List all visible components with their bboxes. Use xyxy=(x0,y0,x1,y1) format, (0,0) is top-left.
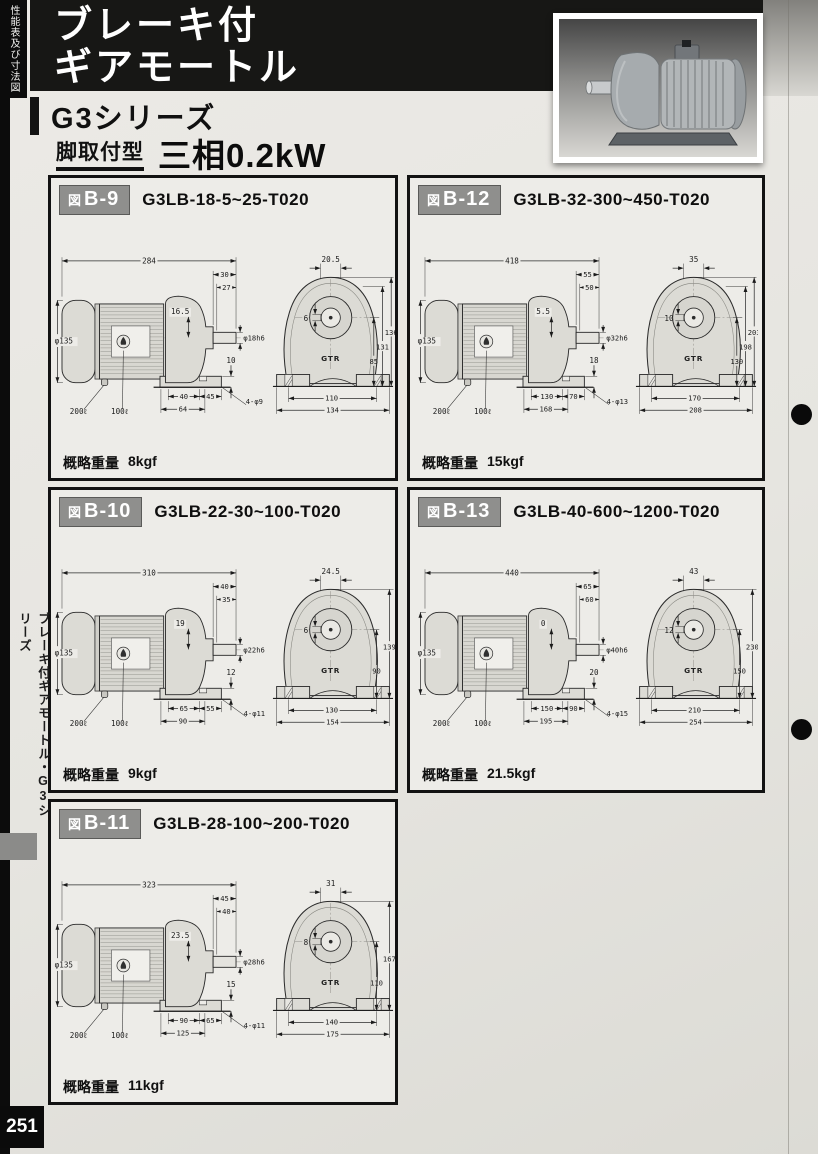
binder-hole-top xyxy=(791,404,812,425)
dimension-label: 16.5 xyxy=(171,307,189,316)
dimension-drawing: 44065600φ135φ40h620200ℓ100ℓ150901954-φ15… xyxy=(412,536,760,764)
end-view: GTR20.5613613185110134 xyxy=(271,248,395,429)
weight-label: 概略重量 xyxy=(63,453,119,473)
dimension-label: 45 xyxy=(220,894,229,903)
side-view: 41855505.5φ135φ32h618200ℓ100ℓ130701684-φ… xyxy=(414,248,632,429)
dimension-label: φ40h6 xyxy=(606,645,627,654)
dimension-label: 150 xyxy=(733,666,746,675)
dimension-label: 10 xyxy=(664,313,674,322)
series-title: G3シリーズ xyxy=(51,95,216,137)
dimension-label: 5.5 xyxy=(536,307,550,316)
dimension-label: 154 xyxy=(326,717,339,726)
catalog-page: 性能表及び寸法図 ブレーキ付 ギアモートル xyxy=(0,0,818,1154)
figure-panel-b9: 図 B-9 G3LB-18-5~25-T020 284302716.5φ135φ… xyxy=(48,175,398,481)
dimension-label: 65 xyxy=(583,582,592,591)
dimension-label: φ135 xyxy=(418,648,436,657)
dimension-label: 150 xyxy=(540,703,553,712)
dimension-label: 323 xyxy=(142,880,156,889)
weight-value: 15kgf xyxy=(487,453,524,473)
figure-panel-b10: 図 B-10 G3LB-22-30~100-T020 310403519φ135… xyxy=(48,487,398,793)
dimension-label: 203 xyxy=(748,327,758,336)
dimension-label: 134 xyxy=(326,405,339,414)
figure-badge-code: B-13 xyxy=(443,500,490,523)
dimension-label: 136 xyxy=(385,327,395,336)
gtr-logo: GTR xyxy=(321,353,340,362)
side-view-drawing: 310403519φ135φ22h612200ℓ100ℓ6555904-φ11 xyxy=(51,560,269,736)
panel-header: 図 B-11 G3LB-28-100~200-T020 xyxy=(51,802,395,839)
dimension-label: 195 xyxy=(539,716,552,725)
dimension-label: 100ℓ xyxy=(111,1030,129,1039)
corner-shade xyxy=(763,0,818,96)
dimension-label: 70 xyxy=(569,391,578,400)
dimension-drawing: 310403519φ135φ22h612200ℓ100ℓ6555904-φ11 … xyxy=(53,536,393,764)
dimension-label: 100ℓ xyxy=(111,406,129,415)
dimension-label: 168 xyxy=(539,404,552,413)
dimension-label: 12 xyxy=(664,625,673,634)
dimension-label: 100ℓ xyxy=(474,718,492,727)
end-view: GTR318167110140175 xyxy=(271,872,395,1053)
dimension-label: φ28h6 xyxy=(243,957,264,966)
dimension-label: 19 xyxy=(176,619,186,628)
end-view: GTR4312230150210254 xyxy=(634,560,758,741)
dimension-label: 27 xyxy=(222,282,231,291)
dimension-label: 50 xyxy=(585,282,594,291)
dimension-label: 85 xyxy=(369,357,378,366)
end-view-drawing: GTR20.5613613185110134 xyxy=(271,248,395,424)
product-photo xyxy=(553,13,763,163)
series-heading-row: G3シリーズ xyxy=(30,95,216,137)
figure-panel-b12: 図 B-12 G3LB-32-300~450-T020 41855505.5φ1… xyxy=(407,175,765,481)
dimension-label: φ135 xyxy=(55,648,73,657)
end-view: GTR3510203198130170208 xyxy=(634,248,758,429)
dimension-label: 100ℓ xyxy=(111,718,129,727)
dimension-label: φ18h6 xyxy=(243,333,264,342)
dimension-label: φ32h6 xyxy=(606,333,627,342)
weight-row: 概略重量 11kgf xyxy=(63,1077,164,1097)
weight-value: 9kgf xyxy=(128,765,157,785)
dimension-label: 40 xyxy=(180,391,189,400)
dimension-label: 110 xyxy=(325,393,338,402)
weight-value: 11kgf xyxy=(128,1077,164,1097)
section-index-label: 性能表及び寸法図 xyxy=(6,5,21,98)
weight-row: 概略重量 15kgf xyxy=(422,453,524,473)
dimension-label: 10 xyxy=(226,356,236,365)
panel-header: 図 B-13 G3LB-40-600~1200-T020 xyxy=(410,490,762,527)
series-accent-bar xyxy=(30,97,39,135)
dimension-label: 210 xyxy=(688,705,701,714)
figure-badge-code: B-11 xyxy=(84,812,130,835)
gtr-logo: GTR xyxy=(684,353,703,362)
dimension-label: 175 xyxy=(326,1029,339,1038)
dimension-drawing: 284302716.5φ135φ18h610200ℓ100ℓ4045644-φ9… xyxy=(53,224,393,452)
dimension-label: 65 xyxy=(206,1015,215,1024)
dimension-label: 130 xyxy=(540,391,553,400)
sidebar-gray-tab xyxy=(0,833,37,860)
figure-panel-b13: 図 B-13 G3LB-40-600~1200-T020 44065600φ13… xyxy=(407,487,765,793)
dimension-drawing: 323454023.5φ135φ28h615200ℓ100ℓ90651254-φ… xyxy=(53,848,393,1076)
sidebar-vertical-title: ブレーキ付ギアモートル・G3シリーズ xyxy=(15,612,53,827)
binder-hole-bottom xyxy=(791,719,812,740)
dimension-label: 208 xyxy=(689,405,702,414)
end-view-drawing: GTR4312230150210254 xyxy=(634,560,758,736)
dimension-label: 90 xyxy=(180,1015,189,1024)
gtr-logo: GTR xyxy=(321,977,340,986)
side-view: 310403519φ135φ22h612200ℓ100ℓ6555904-φ11 xyxy=(51,560,269,741)
page-left-edge xyxy=(0,0,10,1154)
model-number: G3LB-22-30~100-T020 xyxy=(154,502,341,522)
dimension-label: 284 xyxy=(142,256,156,265)
figure-panel-b11: 図 B-11 G3LB-28-100~200-T020 323454023.5φ… xyxy=(48,799,398,1105)
dimension-label: 55 xyxy=(583,270,592,279)
dimension-label: 6 xyxy=(304,313,309,322)
dimension-label: 90 xyxy=(179,716,188,725)
weight-row: 概略重量 21.5kgf xyxy=(422,765,535,785)
dimension-drawing: 41855505.5φ135φ32h618200ℓ100ℓ130701684-φ… xyxy=(412,224,760,452)
weight-row: 概略重量 9kgf xyxy=(63,765,157,785)
weight-label: 概略重量 xyxy=(422,453,478,473)
dimension-label: 440 xyxy=(505,568,519,577)
dimension-label: 4-φ11 xyxy=(244,708,265,717)
dimension-label: 230 xyxy=(746,642,758,651)
end-view: GTR24.5613990130154 xyxy=(271,560,395,741)
figure-badge: 図 B-11 xyxy=(59,809,141,839)
page-edge-line xyxy=(788,0,789,1154)
dimension-label: 40 xyxy=(220,582,229,591)
gtr-logo: GTR xyxy=(321,665,340,674)
dimension-label: 65 xyxy=(180,703,189,712)
end-view-drawing: GTR24.5613990130154 xyxy=(271,560,395,736)
dimension-label: 18 xyxy=(589,356,599,365)
model-number: G3LB-28-100~200-T020 xyxy=(153,814,350,834)
weight-value: 8kgf xyxy=(128,453,157,473)
figure-badge-prefix: 図 xyxy=(68,814,81,833)
dimension-label: 170 xyxy=(688,393,701,402)
dimension-label: 90 xyxy=(569,703,578,712)
dimension-label: 64 xyxy=(179,404,188,413)
side-view: 284302716.5φ135φ18h610200ℓ100ℓ4045644-φ9 xyxy=(51,248,269,429)
side-view-drawing: 284302716.5φ135φ18h610200ℓ100ℓ4045644-φ9 xyxy=(51,248,269,424)
side-view: 323454023.5φ135φ28h615200ℓ100ℓ90651254-φ… xyxy=(51,872,269,1053)
dimension-label: 23.5 xyxy=(171,931,189,940)
dimension-label: 30 xyxy=(220,270,229,279)
figure-badge: 図 B-9 xyxy=(59,185,130,215)
side-view-drawing: 44065600φ135φ40h620200ℓ100ℓ150901954-φ15 xyxy=(414,560,632,736)
dimension-label: 140 xyxy=(325,1017,338,1026)
dimension-label: 20.5 xyxy=(322,254,340,263)
figure-badge-prefix: 図 xyxy=(427,190,440,209)
dimension-label: 418 xyxy=(505,256,519,265)
section-index-tab: 性能表及び寸法図 xyxy=(0,0,27,98)
dimension-label: 130 xyxy=(730,357,743,366)
side-view: 44065600φ135φ40h620200ℓ100ℓ150901954-φ15 xyxy=(414,560,632,741)
subtitle-row: 脚取付型 三相0.2kW xyxy=(56,136,326,171)
side-view-drawing: 41855505.5φ135φ32h618200ℓ100ℓ130701684-φ… xyxy=(414,248,632,424)
figure-badge: 図 B-12 xyxy=(418,185,501,215)
panel-header: 図 B-10 G3LB-22-30~100-T020 xyxy=(51,490,395,527)
dimension-label: φ135 xyxy=(55,336,73,345)
figure-badge: 図 B-10 xyxy=(59,497,142,527)
panel-header: 図 B-12 G3LB-32-300~450-T020 xyxy=(410,178,762,215)
panel-header: 図 B-9 G3LB-18-5~25-T020 xyxy=(51,178,395,215)
dimension-label: 90 xyxy=(372,666,381,675)
dimension-label: 198 xyxy=(739,342,752,351)
dimension-label: 20 xyxy=(589,668,599,677)
figure-badge-prefix: 図 xyxy=(68,190,81,209)
dimension-label: 100ℓ xyxy=(474,406,492,415)
dimension-label: φ22h6 xyxy=(243,645,264,654)
dimension-label: 131 xyxy=(376,342,389,351)
gear-motor-photo-illustration xyxy=(559,19,757,157)
weight-label: 概略重量 xyxy=(63,765,119,785)
dimension-label: 60 xyxy=(585,594,594,603)
dimension-label: 0 xyxy=(541,619,546,628)
model-number: G3LB-40-600~1200-T020 xyxy=(513,502,720,522)
figure-badge-code: B-12 xyxy=(443,188,490,211)
dimension-label: 4-φ11 xyxy=(244,1020,265,1029)
dimension-label: 24.5 xyxy=(322,566,340,575)
end-view-drawing: GTR318167110140175 xyxy=(271,872,395,1048)
weight-label: 概略重量 xyxy=(422,765,478,785)
dimension-label: 45 xyxy=(206,391,215,400)
dimension-label: 31 xyxy=(326,878,336,887)
dimension-label: 4-φ15 xyxy=(607,708,628,717)
dimension-label: 4-φ13 xyxy=(607,396,628,405)
dimension-label: 55 xyxy=(206,703,215,712)
figure-badge-code: B-9 xyxy=(84,188,119,211)
page-number: 251 xyxy=(0,1106,44,1148)
side-view-drawing: 323454023.5φ135φ28h615200ℓ100ℓ90651254-φ… xyxy=(51,872,269,1048)
dimension-label: 139 xyxy=(383,642,395,651)
dimension-label: 40 xyxy=(222,906,231,915)
power-rating-label: 三相0.2kW xyxy=(158,140,326,171)
figure-badge-prefix: 図 xyxy=(427,502,440,521)
dimension-label: 35 xyxy=(689,254,698,263)
model-number: G3LB-18-5~25-T020 xyxy=(142,190,309,210)
dimension-label: 12 xyxy=(226,668,235,677)
end-view-drawing: GTR3510203198130170208 xyxy=(634,248,758,424)
dimension-label: 6 xyxy=(304,625,309,634)
weight-label: 概略重量 xyxy=(63,1077,119,1097)
dimension-label: 254 xyxy=(689,717,702,726)
model-number: G3LB-32-300~450-T020 xyxy=(513,190,710,210)
dimension-label: 4-φ9 xyxy=(246,396,263,405)
dimension-label: 130 xyxy=(325,705,338,714)
weight-row: 概略重量 8kgf xyxy=(63,453,157,473)
mount-type-label: 脚取付型 xyxy=(56,136,144,171)
dimension-label: 310 xyxy=(142,568,156,577)
dimension-label: 15 xyxy=(226,980,235,989)
dimension-label: φ135 xyxy=(55,960,73,969)
dimension-label: 43 xyxy=(689,566,698,575)
figure-badge: 図 B-13 xyxy=(418,497,501,527)
gtr-logo: GTR xyxy=(684,665,703,674)
dimension-label: 110 xyxy=(370,978,383,987)
figure-badge-prefix: 図 xyxy=(68,502,81,521)
dimension-label: φ135 xyxy=(418,336,436,345)
weight-value: 21.5kgf xyxy=(487,765,535,785)
dimension-label: 167 xyxy=(383,954,395,963)
dimension-label: 125 xyxy=(176,1028,189,1037)
dimension-label: 8 xyxy=(304,937,309,946)
dimension-label: 35 xyxy=(222,594,231,603)
figure-badge-code: B-10 xyxy=(84,500,131,523)
